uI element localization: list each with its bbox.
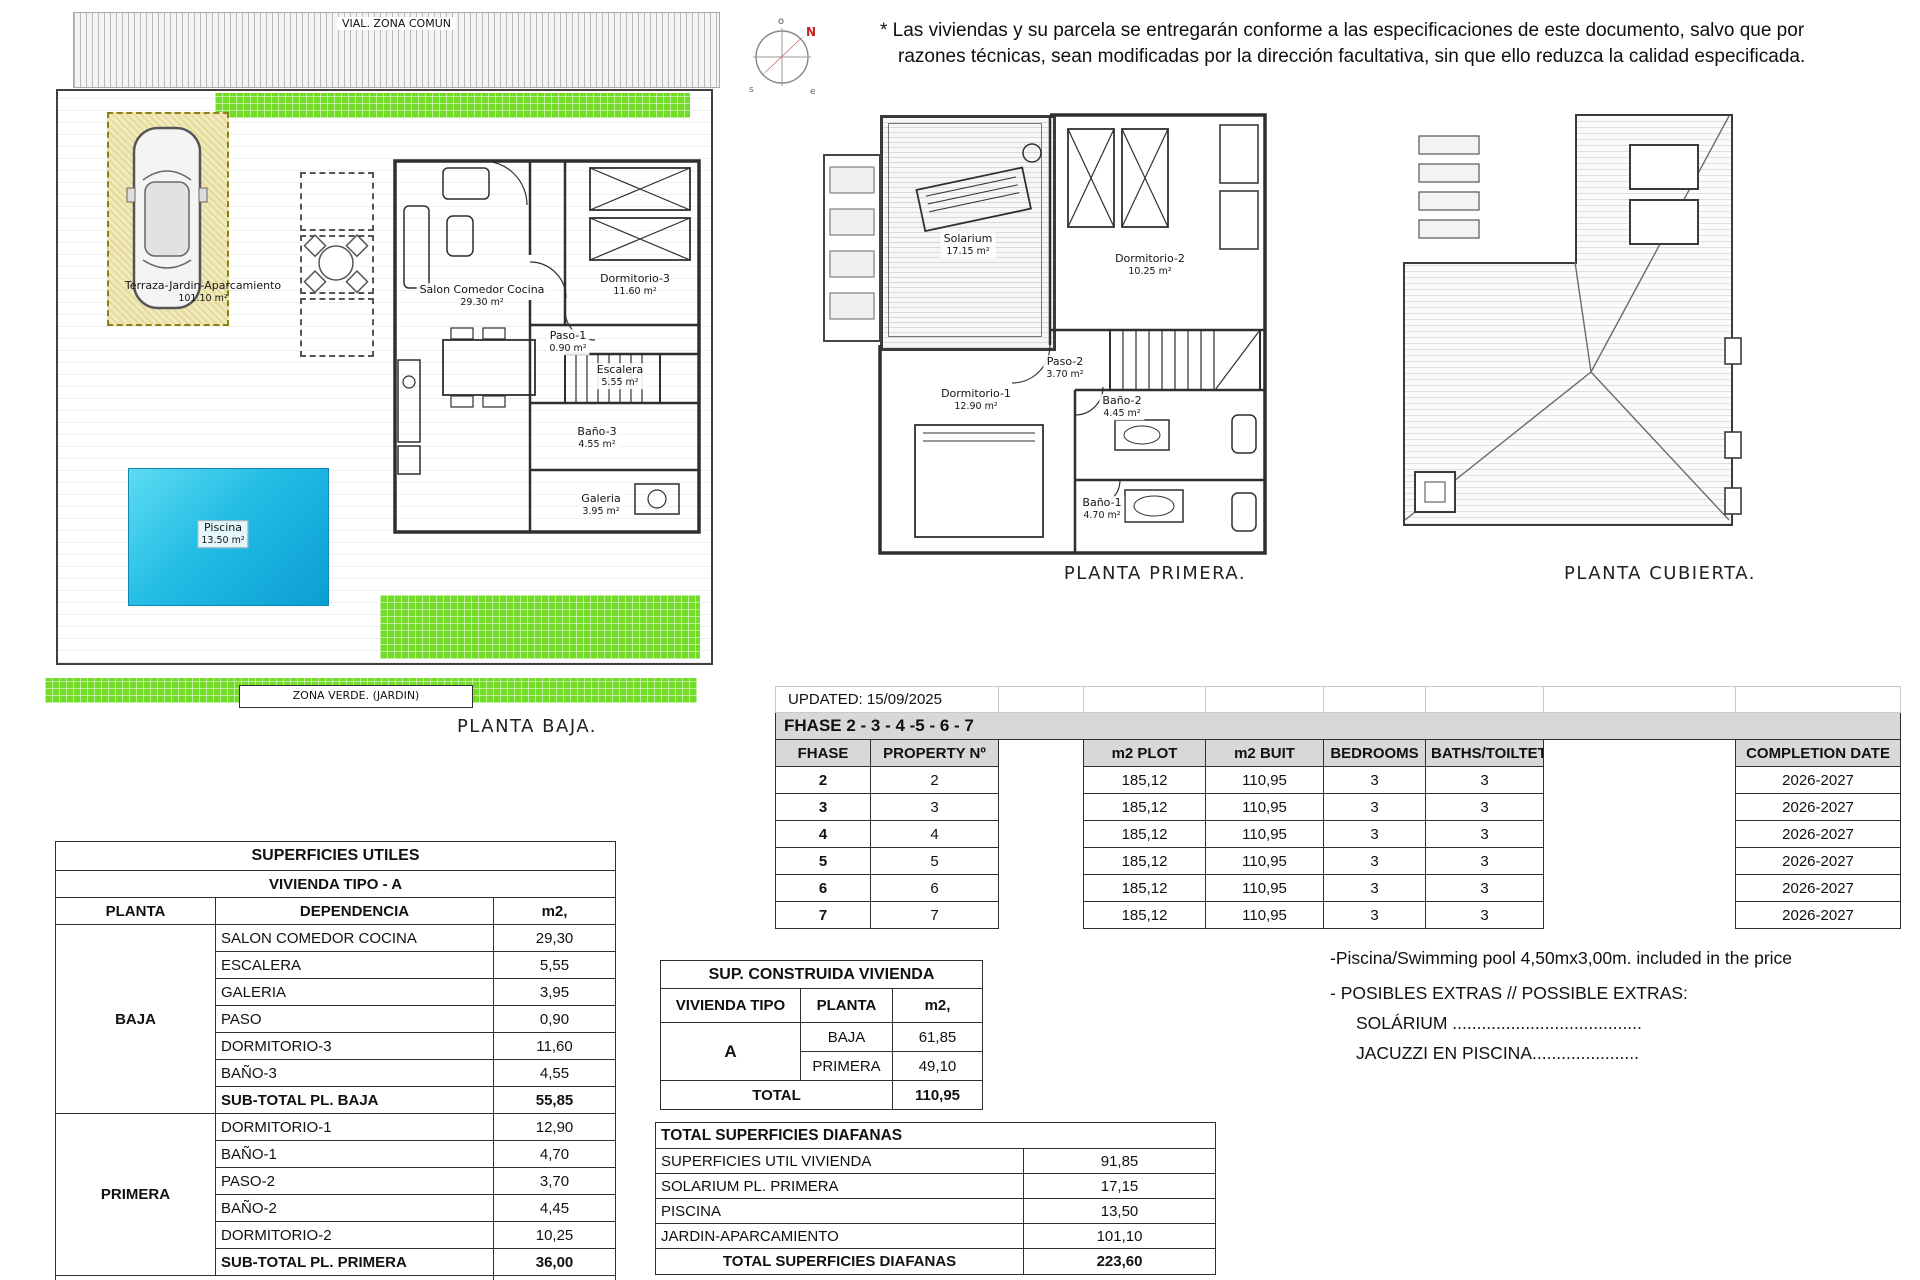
table-row: 66185,12110,95332026-2027	[776, 875, 1901, 902]
cell: 36,00	[494, 1249, 616, 1276]
cell: 3	[1324, 767, 1426, 794]
col-header: PLANTA	[56, 898, 216, 925]
planta-primera-caption: PLANTA PRIMERA.	[1064, 563, 1246, 584]
cell: 5	[776, 848, 871, 875]
tipo-cell: A	[661, 1023, 801, 1081]
compass-icon: o N s e	[745, 12, 821, 100]
cell	[999, 794, 1084, 821]
cell: BAÑO-1	[216, 1141, 494, 1168]
cell: 11,60	[494, 1033, 616, 1060]
total-value: 91,85	[494, 1276, 616, 1280]
cell: 2026-2027	[1736, 875, 1901, 902]
dormitorio1-label: Dormitorio-1 12.90 m²	[941, 387, 1011, 413]
cell: 2026-2027	[1736, 848, 1901, 875]
cell: 17,15	[1024, 1174, 1216, 1199]
cell: 2026-2027	[1736, 902, 1901, 929]
cell	[1544, 821, 1736, 848]
cell: 110,95	[1206, 902, 1324, 929]
cell: 3	[1426, 767, 1544, 794]
bano3-label: Baño-3 4.55 m²	[574, 425, 619, 451]
zona-verde-label: ZONA VERDE. (JARDIN)	[239, 685, 473, 708]
galeria-label: Galeria 3.95 m²	[578, 492, 623, 518]
cell: 3	[1324, 848, 1426, 875]
cell: 3	[1426, 821, 1544, 848]
cell: DORMITORIO-3	[216, 1033, 494, 1060]
cell: 29,30	[494, 925, 616, 952]
table-subtitle-row: VIVIENDA TIPO - A	[56, 871, 616, 898]
col-header: m2,	[893, 989, 983, 1023]
cell	[999, 821, 1084, 848]
table-row: SUPERFICIES UTIL VIVIENDA91,85	[656, 1149, 1216, 1174]
cell: 0,90	[494, 1006, 616, 1033]
cell: PASO	[216, 1006, 494, 1033]
cell: 6	[871, 875, 999, 902]
dormitorio2-label: Dormitorio-2 10.25 m²	[1115, 252, 1185, 278]
cell: 2	[871, 767, 999, 794]
total-value: 223,60	[1024, 1249, 1216, 1275]
table-row: SOLARIUM PL. PRIMERA17,15	[656, 1174, 1216, 1199]
table-header-row: VIVIENDA TIPO PLANTA m2,	[661, 989, 983, 1023]
bano2-label: Baño-2 4.45 m²	[1099, 394, 1144, 420]
extras-title: - POSIBLES EXTRAS // POSSIBLE EXTRAS:	[1330, 983, 1870, 1004]
total-value: 110,95	[893, 1081, 983, 1110]
cell: 4,70	[494, 1141, 616, 1168]
plan-planta-baja: VIAL. ZONA COMUN	[45, 10, 750, 745]
cell: 185,12	[1084, 875, 1206, 902]
cell: 3	[1426, 794, 1544, 821]
svg-text:o: o	[778, 16, 784, 27]
table-title-row: TOTAL SUPERFICIES DIAFANAS	[656, 1123, 1216, 1149]
cell: BAJA	[801, 1023, 893, 1052]
cell: 3	[1324, 875, 1426, 902]
cell: 110,95	[1206, 767, 1324, 794]
planta-cubierta-caption: PLANTA CUBIERTA.	[1564, 563, 1756, 584]
cell: 6	[776, 875, 871, 902]
salon-label: Salon Comedor Cocina 29.30 m²	[417, 283, 548, 309]
terraza-label: Terraza-Jardin-Aparcamiento 101.10 m²	[125, 279, 281, 305]
table-row: PISCINA13,50	[656, 1199, 1216, 1224]
phase-band-title: FHASE 2 - 3 - 4 -5 - 6 - 7	[776, 713, 1901, 740]
planta-cell: BAJA	[56, 925, 216, 1114]
table-title-row: SUPERFICIES UTILES	[56, 842, 616, 871]
cell: SALON COMEDOR COCINA	[216, 925, 494, 952]
svg-text:s: s	[749, 85, 754, 95]
vivienda-tipo-subtitle: VIVIENDA TIPO - A	[56, 871, 616, 898]
cell: 4	[871, 821, 999, 848]
cell	[1544, 794, 1736, 821]
col-header: BEDROOMS	[1324, 740, 1426, 767]
cell: SUB-TOTAL PL. PRIMERA	[216, 1249, 494, 1276]
cell: 110,95	[1206, 875, 1324, 902]
cell: PISCINA	[656, 1199, 1024, 1224]
table-row: BAJASALON COMEDOR COCINA29,30	[56, 925, 616, 952]
svg-text:N: N	[806, 25, 816, 39]
sup-construida-table: SUP. CONSTRUIDA VIVIENDA VIVIENDA TIPO P…	[660, 960, 983, 1110]
table-row: PRIMERADORMITORIO-112,90	[56, 1114, 616, 1141]
col-header: FHASE	[776, 740, 871, 767]
cell	[1544, 875, 1736, 902]
cell: SUB-TOTAL PL. BAJA	[216, 1087, 494, 1114]
col-header: BATHS/TOILTET	[1426, 740, 1544, 767]
cell: 4,55	[494, 1060, 616, 1087]
notes-block: -Piscina/Swimming pool 4,50mx3,00m. incl…	[1330, 948, 1870, 1073]
cell: BAÑO-2	[216, 1195, 494, 1222]
dormitorio3-label: Dormitorio-3 11.60 m²	[600, 272, 670, 298]
col-spacer	[999, 740, 1084, 767]
total-label: TOTAL	[661, 1081, 893, 1110]
planta-cell: PRIMERA	[56, 1114, 216, 1276]
cell: SUPERFICIES UTIL VIVIENDA	[656, 1149, 1024, 1174]
cell	[1544, 902, 1736, 929]
table-row: 33185,12110,95332026-2027	[776, 794, 1901, 821]
cell: 3,70	[494, 1168, 616, 1195]
cell: 3	[1426, 875, 1544, 902]
bano1-label: Baño-1 4.70 m²	[1079, 496, 1124, 522]
cell: 10,25	[494, 1222, 616, 1249]
superficies-utiles-table: SUPERFICIES UTILES VIVIENDA TIPO - A PLA…	[55, 841, 616, 1280]
cell: 185,12	[1084, 767, 1206, 794]
cell: 185,12	[1084, 794, 1206, 821]
cell: DORMITORIO-2	[216, 1222, 494, 1249]
cell	[1544, 767, 1736, 794]
diafanas-table: TOTAL SUPERFICIES DIAFANAS SUPERFICIES U…	[655, 1122, 1216, 1275]
total-row: TOTAL91,85	[56, 1276, 616, 1280]
cell: 3,95	[494, 979, 616, 1006]
svg-text:e: e	[810, 87, 816, 97]
cell: GALERIA	[216, 979, 494, 1006]
col-header: m2,	[494, 898, 616, 925]
col-header: m2 PLOT	[1084, 740, 1206, 767]
table-row: 44185,12110,95332026-2027	[776, 821, 1901, 848]
cell: 12,90	[494, 1114, 616, 1141]
total-row: TOTAL 110,95	[661, 1081, 983, 1110]
cell: 3	[1426, 902, 1544, 929]
cell: 91,85	[1024, 1149, 1216, 1174]
cell: 2	[776, 767, 871, 794]
cell: 3	[1426, 848, 1544, 875]
escalera-label: Escalera 5.55 m²	[594, 363, 647, 389]
cell: 61,85	[893, 1023, 983, 1052]
cell	[999, 767, 1084, 794]
cell: 3	[1324, 794, 1426, 821]
cell: 101,10	[1024, 1224, 1216, 1249]
disclaimer-text: * Las viviendas y su parcela se entregar…	[880, 18, 1840, 70]
table-title-row: SUP. CONSTRUIDA VIVIENDA	[661, 961, 983, 989]
phase-band-row: FHASE 2 - 3 - 4 -5 - 6 - 7	[776, 713, 1901, 740]
cell: PRIMERA	[801, 1052, 893, 1081]
col-header: PROPERTY Nº	[871, 740, 999, 767]
cell: 4,45	[494, 1195, 616, 1222]
cell: 3	[1324, 902, 1426, 929]
updated-row: UPDATED: 15/09/2025	[776, 687, 1901, 713]
total-label: TOTAL SUPERFICIES DIAFANAS	[656, 1249, 1024, 1275]
cell: 110,95	[1206, 821, 1324, 848]
col-spacer	[1544, 740, 1736, 767]
table-row: 55185,12110,95332026-2027	[776, 848, 1901, 875]
cell: 4	[776, 821, 871, 848]
cell: 185,12	[1084, 821, 1206, 848]
paso2-label: Paso-2 3.70 m²	[1043, 355, 1086, 381]
table-header-row: PLANTA DEPENDENCIA m2,	[56, 898, 616, 925]
col-header: DEPENDENCIA	[216, 898, 494, 925]
extra-item: SOLÁRIUM ...............................…	[1356, 1013, 1870, 1034]
cell	[999, 848, 1084, 875]
plan-planta-primera: Solarium 17.15 m² Dormitorio-2 10.25 m² …	[820, 95, 1290, 600]
construida-title: SUP. CONSTRUIDA VIVIENDA	[661, 961, 983, 989]
table-row: A BAJA 61,85	[661, 1023, 983, 1052]
roof-lines	[1395, 110, 1745, 585]
cell: 13,50	[1024, 1199, 1216, 1224]
paso1-label: Paso-1 0.90 m²	[546, 329, 589, 355]
cell: 7	[871, 902, 999, 929]
col-header: PLANTA	[801, 989, 893, 1023]
cell: 55,85	[494, 1087, 616, 1114]
col-header: m2 BUIT	[1206, 740, 1324, 767]
col-header: COMPLETION DATE	[1736, 740, 1901, 767]
extras-list: SOLÁRIUM ...............................…	[1330, 1013, 1870, 1064]
cell: DORMITORIO-1	[216, 1114, 494, 1141]
table-row: JARDIN-APARCAMIENTO101,10	[656, 1224, 1216, 1249]
superficies-title: SUPERFICIES UTILES	[56, 842, 616, 871]
total-label: TOTAL	[56, 1276, 494, 1280]
solarium-label: Solarium 17.15 m²	[941, 232, 996, 258]
cell	[999, 902, 1084, 929]
phase-header-row: FHASE PROPERTY Nº m2 PLOT m2 BUIT BEDROO…	[776, 740, 1901, 767]
cell: SOLARIUM PL. PRIMERA	[656, 1174, 1024, 1199]
first-floor-walls	[820, 95, 1290, 600]
cell: 185,12	[1084, 902, 1206, 929]
planta-baja-caption: PLANTA BAJA.	[457, 716, 597, 737]
cell: JARDIN-APARCAMIENTO	[656, 1224, 1024, 1249]
diafanas-title: TOTAL SUPERFICIES DIAFANAS	[656, 1123, 1216, 1149]
pool-note: -Piscina/Swimming pool 4,50mx3,00m. incl…	[1330, 948, 1870, 969]
plan-sheet: VIAL. ZONA COMUN	[0, 0, 1920, 1280]
cell: PASO-2	[216, 1168, 494, 1195]
cell: 185,12	[1084, 848, 1206, 875]
phase-table: UPDATED: 15/09/2025 FHASE 2 - 3 - 4 -5 -…	[775, 686, 1901, 929]
cell: 3	[1324, 821, 1426, 848]
cell: 3	[871, 794, 999, 821]
cell: 110,95	[1206, 794, 1324, 821]
extra-item: JACUZZI EN PISCINA......................	[1356, 1043, 1870, 1064]
cell: 5	[871, 848, 999, 875]
cell: 3	[776, 794, 871, 821]
cell: 110,95	[1206, 848, 1324, 875]
cell: ESCALERA	[216, 952, 494, 979]
cell	[1544, 848, 1736, 875]
table-row: 77185,12110,95332026-2027	[776, 902, 1901, 929]
total-row: TOTAL SUPERFICIES DIAFANAS223,60	[656, 1249, 1216, 1275]
cell: BAÑO-3	[216, 1060, 494, 1087]
cell: 7	[776, 902, 871, 929]
table-row: 22185,12110,95332026-2027	[776, 767, 1901, 794]
col-header: VIVIENDA TIPO	[661, 989, 801, 1023]
updated-cell: UPDATED: 15/09/2025	[776, 687, 999, 713]
cell: 2026-2027	[1736, 821, 1901, 848]
cell	[999, 875, 1084, 902]
cell: 49,10	[893, 1052, 983, 1081]
cell: 2026-2027	[1736, 794, 1901, 821]
cell: 5,55	[494, 952, 616, 979]
cell: 2026-2027	[1736, 767, 1901, 794]
plan-planta-cubierta: PLANTA CUBIERTA.	[1395, 110, 1745, 585]
